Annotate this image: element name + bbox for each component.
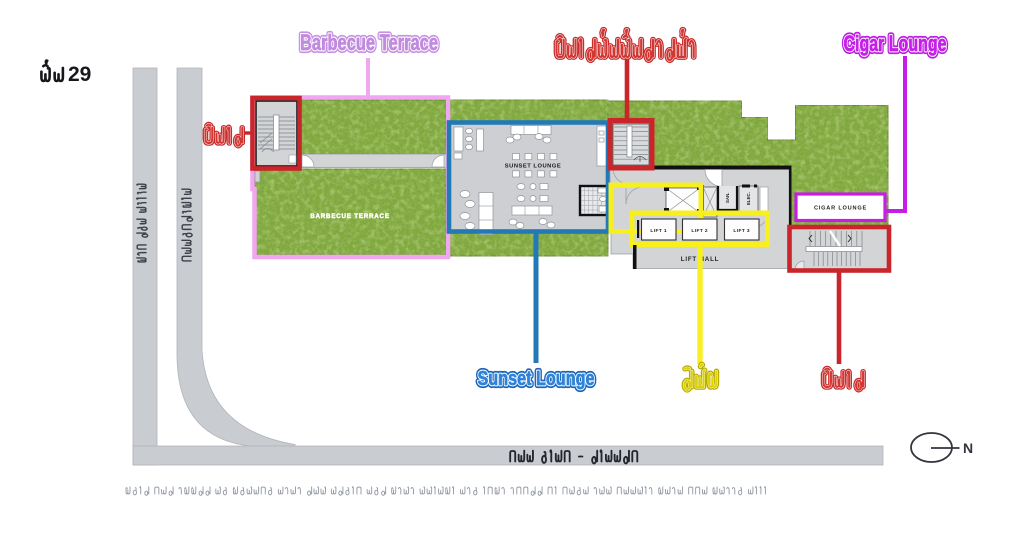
svg-text:Cigar Lounge: Cigar Lounge [844,31,947,56]
svg-text:Sunset Lounge: Sunset Lounge [478,367,595,390]
svg-text:N: N [963,440,973,456]
svg-text:LIFT 2: LIFT 2 [691,228,708,234]
svg-text:ELEC.: ELEC. [746,192,751,205]
svg-text:SUNSET LOUNGE: SUNSET LOUNGE [505,164,561,170]
svg-text:Barbecue Terrace: Barbecue Terrace [300,30,438,55]
svg-text:CIGAR LOUNGE: CIGAR LOUNGE [814,206,867,212]
svg-text:29: 29 [68,63,91,86]
svg-text:LIFT 3: LIFT 3 [733,228,750,234]
svg-text:SAN.: SAN. [725,193,730,204]
svg-text:LIFT 1: LIFT 1 [650,228,667,234]
svg-text:BARBECUE TERRACE: BARBECUE TERRACE [310,213,390,220]
